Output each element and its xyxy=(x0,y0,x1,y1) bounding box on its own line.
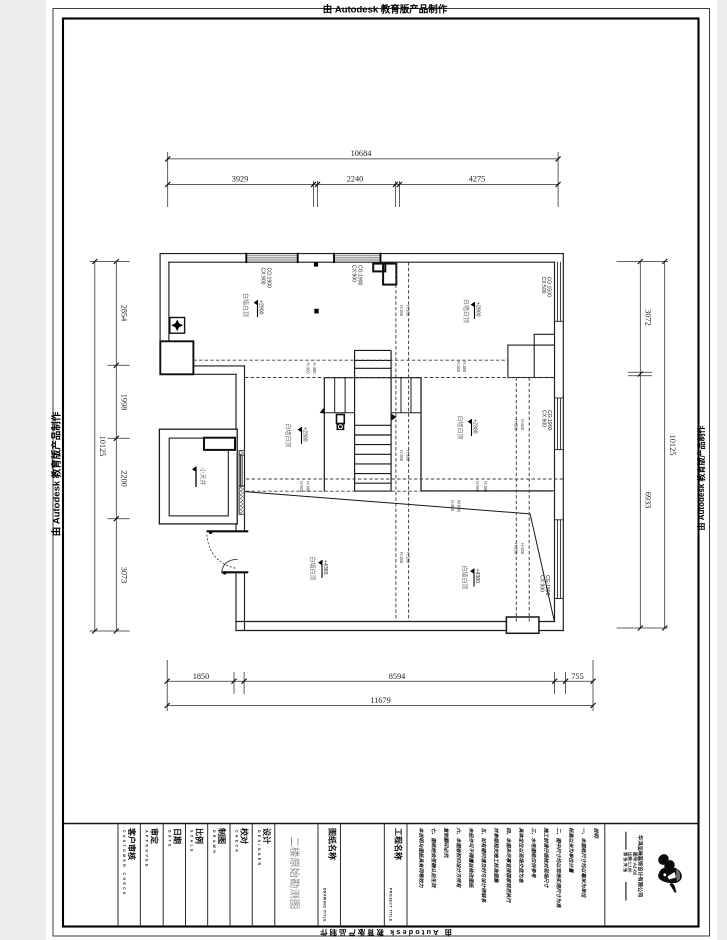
svg-text:H:650: H:650 xyxy=(514,419,519,431)
svg-text:H:280: H:280 xyxy=(406,305,411,317)
svg-text:DRAWN: DRAWN xyxy=(212,830,216,855)
svg-text:三、水电图纸仅供参考: 三、水电图纸仅供参考 xyxy=(530,828,537,879)
svg-text:H:350: H:350 xyxy=(306,363,311,375)
svg-text:CX:900: CX:900 xyxy=(351,265,357,282)
svg-text:设计: 设计 xyxy=(262,828,272,844)
svg-text:H:600: H:600 xyxy=(520,543,525,555)
svg-text:H:350: H:350 xyxy=(399,450,404,462)
svg-text:并参照相关施工标准图集: 并参照相关施工标准图集 xyxy=(493,828,500,884)
svg-text:H:380: H:380 xyxy=(483,481,488,493)
svg-text:制图: 制图 xyxy=(217,828,227,844)
svg-text:白墙白顶: 白墙白顶 xyxy=(284,424,292,448)
svg-text:+4380: +4380 xyxy=(322,560,328,575)
svg-text:H:380: H:380 xyxy=(312,363,317,375)
svg-text:CX:900: CX:900 xyxy=(541,410,547,427)
svg-text:+2300: +2300 xyxy=(302,427,308,442)
svg-text:华浔品味装饰设计有限公司: 华浔品味装饰设计有限公司 xyxy=(637,835,645,897)
svg-text:DESIGNER: DESIGNER xyxy=(257,830,261,867)
svg-text:标高以米为单位计量: 标高以米为单位计量 xyxy=(568,828,575,874)
svg-text:CX:900: CX:900 xyxy=(539,575,545,592)
svg-text:白墙白顶: 白墙白顶 xyxy=(462,299,470,323)
svg-text:一、本图纸尺寸均以毫米为单位: 一、本图纸尺寸均以毫米为单位 xyxy=(580,828,587,899)
svg-text:本说明与图纸具有同等效力: 本说明与图纸具有同等效力 xyxy=(418,828,425,889)
svg-text:由 Autodesk 教育版产品制作: 由 Autodesk 教育版产品制作 xyxy=(318,928,452,937)
svg-text:2854: 2854 xyxy=(120,305,129,322)
svg-text:图纸名称: 图纸名称 xyxy=(328,828,338,860)
svg-text:+2900: +2900 xyxy=(475,302,481,317)
svg-text:10684: 10684 xyxy=(351,149,373,158)
svg-text:DATE: DATE xyxy=(168,830,172,849)
svg-text:H:550: H:550 xyxy=(299,481,304,493)
svg-text:工程名称: 工程名称 xyxy=(394,828,404,860)
svg-text:+2900: +2900 xyxy=(258,300,264,315)
svg-text:由 Autodesk 教育版产品制作: 由 Autodesk 教育版产品制作 xyxy=(323,4,448,16)
svg-text:CX:900: CX:900 xyxy=(260,268,266,285)
svg-text:11679: 11679 xyxy=(370,696,390,705)
svg-text:3929: 3929 xyxy=(232,175,249,184)
svg-text:4275: 4275 xyxy=(469,175,486,184)
svg-text:说明:: 说明: xyxy=(593,828,600,840)
svg-text:+4380: +4380 xyxy=(474,569,480,584)
svg-text:比例: 比例 xyxy=(195,828,205,844)
svg-text:10125: 10125 xyxy=(668,435,677,456)
svg-text:H:280: H:280 xyxy=(406,552,411,564)
svg-text:白墙白顶: 白墙白顶 xyxy=(461,566,469,590)
svg-text:CUSTOMER CHECK: CUSTOMER CHECK xyxy=(122,830,126,897)
svg-text:未经许可不得擅自修改图纸: 未经许可不得擅自修改图纸 xyxy=(468,828,475,889)
svg-text:由 Autodesk 教育版产品制作: 由 Autodesk 教育版产品制作 xyxy=(51,411,63,536)
svg-text:SCALE: SCALE xyxy=(190,830,194,854)
svg-text:小天井: 小天井 xyxy=(199,468,207,486)
svg-text:3073: 3073 xyxy=(120,567,129,584)
svg-text:755: 755 xyxy=(571,672,583,681)
svg-text:1850: 1850 xyxy=(193,672,210,681)
svg-text:五、如有疑问请及时与设计师联系: 五、如有疑问请及时与设计师联系 xyxy=(480,828,487,904)
svg-text:由 Autodesk 教育版产品制作: 由 Autodesk 教育版产品制作 xyxy=(696,426,706,531)
svg-text:二楼原始勘测图: 二楼原始勘测图 xyxy=(288,837,301,910)
svg-text:H:380: H:380 xyxy=(306,481,311,493)
svg-text:二、图中尺寸均以现场实测尺寸为准: 二、图中尺寸均以现场实测尺寸为准 xyxy=(555,828,562,909)
svg-text:H:280: H:280 xyxy=(406,450,411,462)
svg-text:CX:500: CX:500 xyxy=(540,277,546,294)
svg-text:+2300: +2300 xyxy=(472,419,478,434)
svg-text:H:550: H:550 xyxy=(475,481,480,493)
svg-text:H:600: H:600 xyxy=(520,419,525,431)
svg-text:CHECK: CHECK xyxy=(235,830,239,854)
svg-text:APPROVED: APPROVED xyxy=(145,830,149,869)
svg-text:七、图纸经会签确认后生效: 七、图纸经会签确认后生效 xyxy=(430,828,437,889)
svg-text:3072: 3072 xyxy=(644,309,653,326)
svg-text:DRAWING TITLE: DRAWING TITLE xyxy=(323,888,327,922)
svg-text:白墙白顶: 白墙白顶 xyxy=(242,293,250,317)
svg-text:校对: 校对 xyxy=(240,828,250,844)
svg-text:四、本图未尽事宜按国家规范执行: 四、本图未尽事宜按国家规范执行 xyxy=(505,828,512,904)
svg-text:白墙白顶: 白墙白顶 xyxy=(456,416,464,440)
svg-text:H:350: H:350 xyxy=(399,552,404,564)
svg-text:客户审核: 客户审核 xyxy=(127,827,137,860)
svg-text:H:350: H:350 xyxy=(456,361,461,373)
svg-text:H:650: H:650 xyxy=(514,543,519,555)
svg-text:第 张 共 张: 第 张 共 张 xyxy=(622,852,629,873)
svg-text:具体定位以现场交底为准: 具体定位以现场交底为准 xyxy=(518,827,525,884)
svg-text:PROJECT TITLE: PROJECT TITLE xyxy=(389,888,393,922)
svg-text:H:800: H:800 xyxy=(450,500,455,512)
svg-text:白墙白顶: 白墙白顶 xyxy=(309,557,317,581)
svg-text:6933: 6933 xyxy=(644,492,653,509)
svg-text:8594: 8594 xyxy=(389,672,406,681)
svg-text:10125: 10125 xyxy=(98,436,107,457)
svg-text:复制翻印必究: 复制翻印必究 xyxy=(443,828,450,859)
svg-text:H:380: H:380 xyxy=(462,361,467,373)
svg-text:日期: 日期 xyxy=(173,828,183,844)
svg-text:2240: 2240 xyxy=(347,175,364,184)
svg-text:2200: 2200 xyxy=(120,470,129,487)
svg-text:H:350: H:350 xyxy=(399,305,404,317)
svg-text:W:800: W:800 xyxy=(457,500,462,513)
svg-text:施工前请仔细核对现场尺寸: 施工前请仔细核对现场尺寸 xyxy=(543,827,550,889)
svg-text:审定: 审定 xyxy=(150,828,160,844)
svg-text:1998: 1998 xyxy=(120,394,129,411)
svg-text:六、本图版权归设计方所有: 六、本图版权归设计方所有 xyxy=(455,828,462,889)
